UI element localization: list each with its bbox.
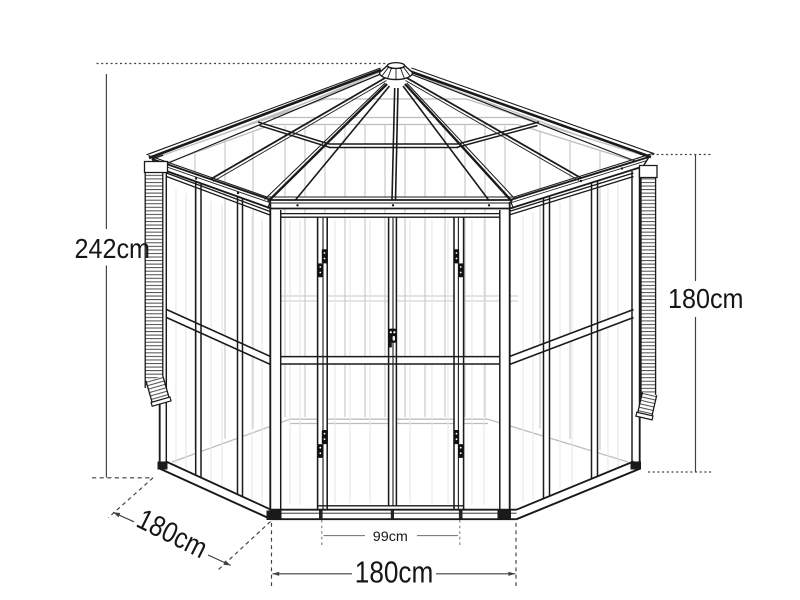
svg-text:99cm: 99cm (373, 529, 408, 544)
svg-text:180cm: 180cm (668, 283, 744, 314)
svg-text:180cm: 180cm (355, 554, 434, 589)
svg-text:242cm: 242cm (75, 233, 151, 264)
